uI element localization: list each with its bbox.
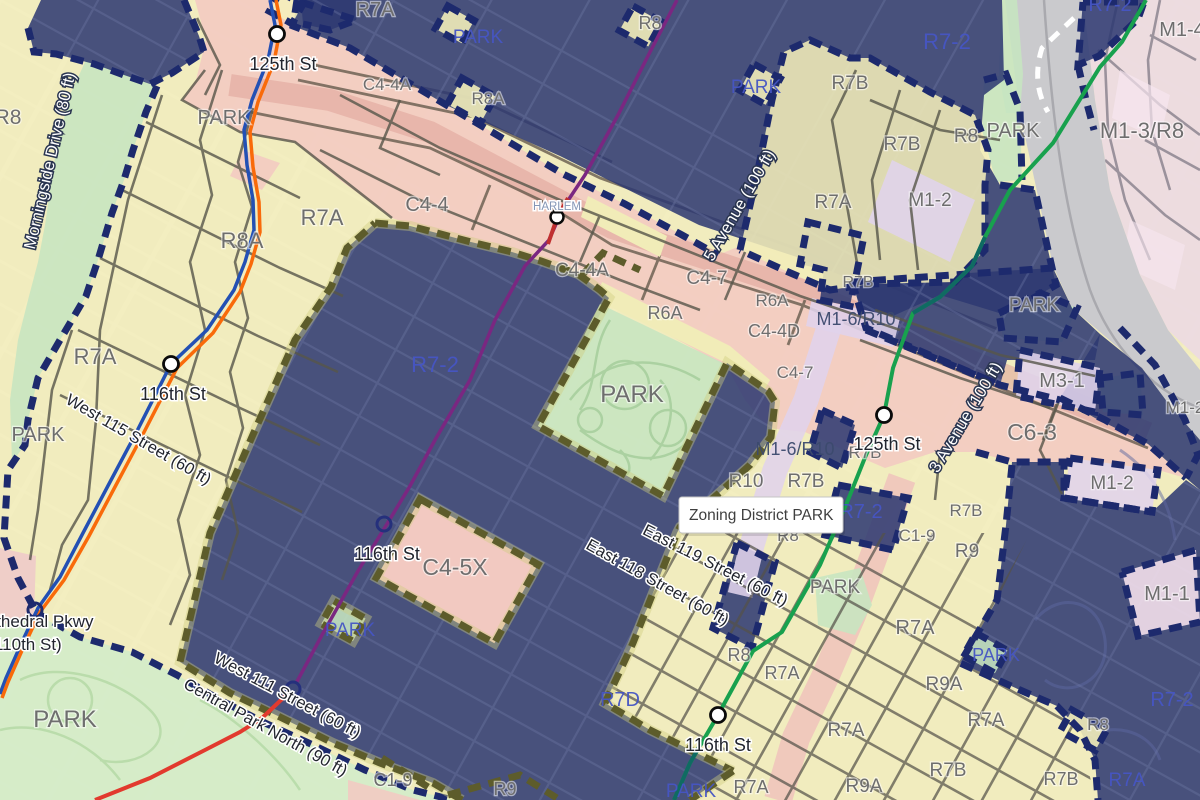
svg-text:PARK: PARK: [33, 706, 97, 733]
svg-text:C1-9: C1-9: [373, 770, 412, 790]
svg-text:Cathedral Pkwy: Cathedral Pkwy: [0, 612, 94, 631]
svg-text:R7B: R7B: [884, 134, 921, 155]
svg-text:M1-1: M1-1: [1144, 583, 1190, 605]
svg-text:R7A: R7A: [828, 720, 865, 741]
svg-text:R8: R8: [954, 126, 978, 147]
svg-text:M1-6/R10: M1-6/R10: [816, 309, 895, 329]
svg-text:125th St: 125th St: [853, 434, 920, 454]
svg-text:R9A: R9A: [926, 674, 963, 695]
svg-text:R8: R8: [727, 645, 750, 665]
svg-text:R6A: R6A: [755, 291, 789, 310]
svg-text:C4-4A: C4-4A: [555, 260, 609, 281]
svg-text:PARK: PARK: [1009, 295, 1060, 316]
svg-text:116th St: 116th St: [354, 544, 420, 564]
svg-text:R7-2: R7-2: [1150, 689, 1193, 711]
svg-text:R7B: R7B: [788, 471, 825, 492]
svg-text:R7B: R7B: [930, 760, 967, 781]
svg-text:C6-3: C6-3: [1007, 419, 1057, 445]
svg-text:PARK: PARK: [198, 107, 252, 129]
svg-text:R8: R8: [1087, 715, 1109, 734]
svg-text:R9: R9: [955, 541, 979, 562]
svg-text:C4-5X: C4-5X: [422, 554, 487, 580]
svg-text:R7A: R7A: [733, 777, 768, 797]
svg-text:PARK: PARK: [731, 77, 782, 98]
svg-text:C4-4A: C4-4A: [363, 75, 412, 94]
svg-text:M1-2: M1-2: [908, 190, 951, 211]
svg-text:R7A: R7A: [896, 617, 936, 639]
svg-text:R7B: R7B: [1043, 769, 1078, 789]
svg-text:PARK: PARK: [453, 27, 504, 48]
svg-text:R7-2: R7-2: [1088, 0, 1131, 16]
svg-text:R6A: R6A: [647, 303, 682, 323]
svg-text:C4-7: C4-7: [777, 363, 814, 382]
svg-text:R8A: R8A: [221, 228, 264, 253]
svg-text:R8: R8: [0, 106, 21, 129]
svg-text:PARK: PARK: [12, 424, 66, 446]
svg-text:116th St: 116th St: [685, 735, 751, 755]
svg-text:R7A: R7A: [301, 205, 344, 230]
svg-text:R7A: R7A: [356, 0, 396, 21]
svg-text:M1-4: M1-4: [1159, 19, 1200, 41]
svg-text:R7-2: R7-2: [923, 29, 971, 54]
svg-text:C4-4D: C4-4D: [748, 321, 800, 341]
svg-text:M1-2: M1-2: [1090, 473, 1133, 494]
svg-text:R7A: R7A: [764, 663, 799, 683]
svg-text:C4-7: C4-7: [686, 268, 727, 289]
svg-text:M3-1: M3-1: [1039, 370, 1085, 392]
svg-text:PARK: PARK: [666, 781, 717, 800]
svg-text:R8: R8: [638, 13, 661, 33]
svg-text:R7A: R7A: [968, 710, 1005, 731]
svg-text:R9A: R9A: [846, 776, 883, 797]
svg-text:PARK: PARK: [600, 381, 664, 408]
svg-text:125th St: 125th St: [249, 54, 316, 74]
svg-text:M1-3/R8: M1-3/R8: [1100, 118, 1184, 143]
svg-text:R7-2: R7-2: [839, 501, 882, 523]
svg-text:HARLEM: HARLEM: [533, 201, 581, 213]
svg-text:R7-2: R7-2: [411, 352, 459, 377]
svg-text:R7A: R7A: [1109, 770, 1146, 791]
svg-text:R7B: R7B: [949, 501, 982, 520]
svg-text:R9: R9: [493, 779, 516, 799]
svg-text:R7B: R7B: [842, 274, 873, 291]
svg-text:R7A: R7A: [815, 192, 852, 213]
svg-text:R10: R10: [729, 471, 764, 492]
svg-text:C4-4: C4-4: [405, 194, 448, 216]
svg-text:Zoning District PARK: Zoning District PARK: [689, 507, 834, 524]
svg-text:116th St: 116th St: [140, 384, 206, 404]
svg-text:R7A: R7A: [74, 344, 117, 369]
svg-text:M1-2: M1-2: [1166, 398, 1200, 417]
svg-text:R7B: R7B: [832, 73, 869, 94]
svg-text:(110th St): (110th St): [0, 635, 62, 654]
svg-text:PARK: PARK: [325, 620, 376, 641]
svg-text:C1-9: C1-9: [899, 526, 936, 545]
svg-text:PARK: PARK: [972, 645, 1020, 665]
svg-text:PARK: PARK: [810, 577, 861, 598]
svg-text:R7D: R7D: [600, 689, 640, 711]
svg-text:PARK: PARK: [987, 120, 1041, 142]
svg-text:M1-6/R10: M1-6/R10: [755, 439, 834, 459]
svg-text:R8A: R8A: [471, 89, 505, 108]
